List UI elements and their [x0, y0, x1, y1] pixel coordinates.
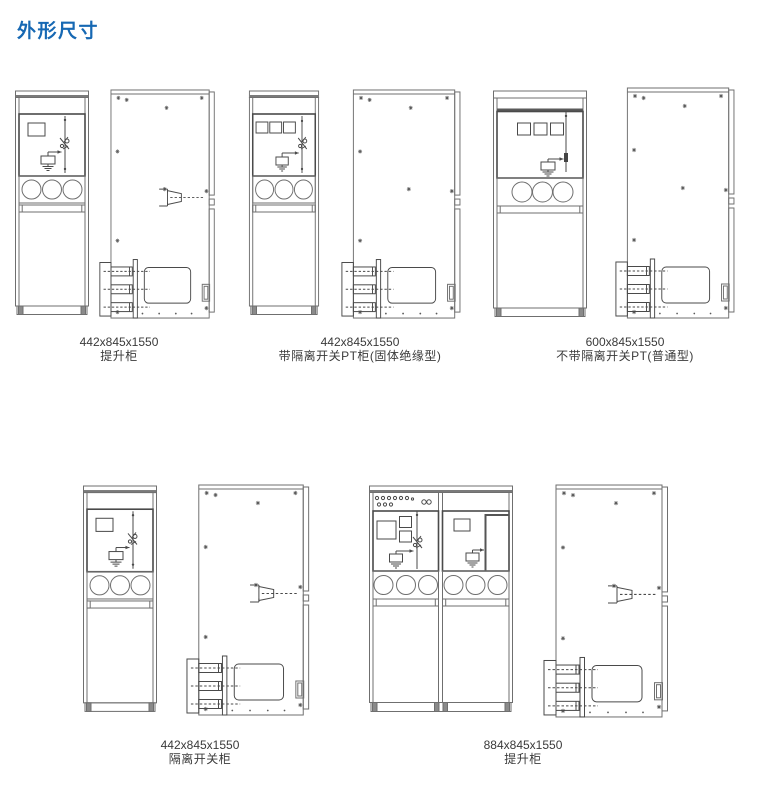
- side-view-drawing: [185, 483, 319, 719]
- figure-cabinet-4: 442x845x1550 隔离开关柜: [75, 483, 325, 773]
- side-view-drawing: [340, 88, 470, 322]
- figure-cabinet-1: 442x845x1550 提升柜: [14, 88, 224, 370]
- side-view-drawing: [98, 88, 224, 322]
- dimension-diagram-page: 外形尺寸: [0, 0, 766, 785]
- side-view-drawing: [542, 483, 678, 721]
- front-view-drawing: [492, 90, 588, 326]
- page-title: 外形尺寸: [17, 16, 99, 43]
- figure-dimensions: 442x845x1550: [75, 739, 325, 753]
- figure-dimensions: 442x845x1550: [14, 336, 224, 350]
- figure-cabinet-2: 442x845x1550 带隔离开关PT柜(固体绝缘型): [248, 88, 472, 370]
- figure-cabinet-5: 884x845x1550 提升柜: [368, 483, 678, 773]
- figure-caption: 884x845x1550 提升柜: [368, 739, 678, 766]
- front-view-drawing: [248, 90, 320, 326]
- figure-caption: 442x845x1550 提升柜: [14, 336, 224, 363]
- figure-name: 提升柜: [368, 753, 678, 767]
- front-view-drawing: [14, 90, 90, 326]
- figure-caption: 442x845x1550 隔离开关柜: [75, 739, 325, 766]
- figure-caption: 442x845x1550 带隔离开关PT柜(固体绝缘型): [248, 336, 472, 363]
- front-view-drawing: [368, 485, 514, 723]
- figure-caption: 600x845x1550 不带隔离开关PT(普通型): [492, 336, 758, 363]
- figure-name: 提升柜: [14, 350, 224, 364]
- side-view-drawing: [614, 86, 744, 322]
- figure-dimensions: 884x845x1550: [368, 739, 678, 753]
- front-view-drawing: [82, 485, 158, 723]
- figure-dimensions: 600x845x1550: [492, 336, 758, 350]
- figure-name: 不带隔离开关PT(普通型): [492, 350, 758, 364]
- figure-dimensions: 442x845x1550: [248, 336, 472, 350]
- figure-cabinet-3: 600x845x1550 不带隔离开关PT(普通型): [492, 86, 758, 370]
- figure-name: 隔离开关柜: [75, 753, 325, 767]
- figure-name: 带隔离开关PT柜(固体绝缘型): [248, 350, 472, 364]
